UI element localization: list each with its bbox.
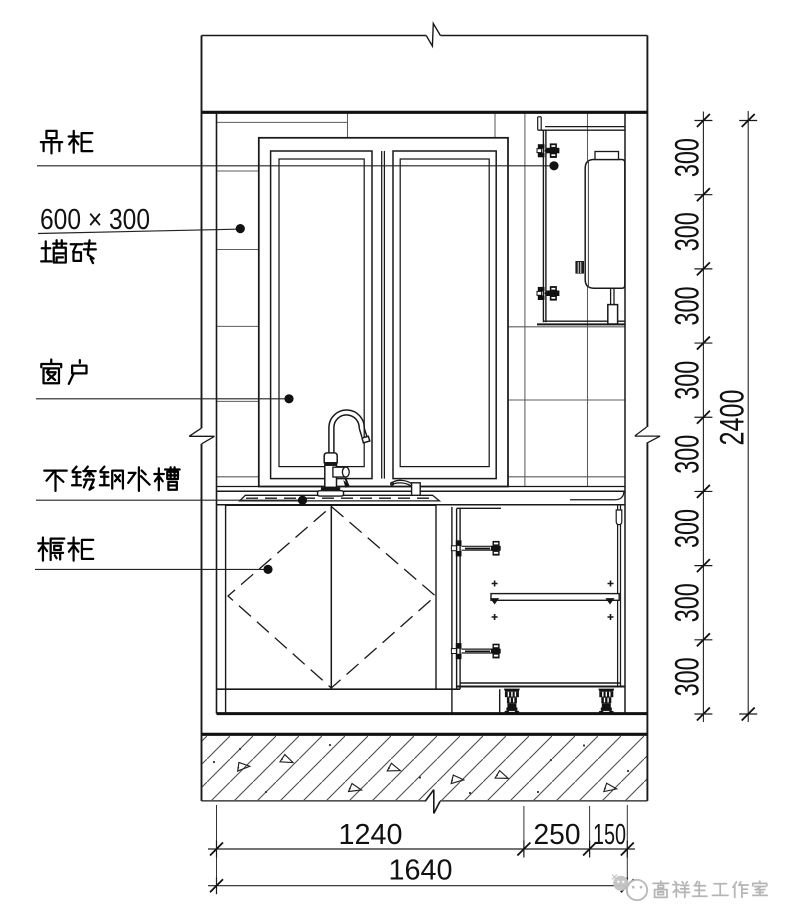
svg-text:300: 300	[669, 657, 707, 696]
svg-text:300: 300	[669, 361, 707, 400]
svg-text:300: 300	[669, 509, 707, 548]
svg-text:300: 300	[669, 435, 707, 474]
svg-text:300: 300	[669, 287, 707, 326]
svg-text:600 × 300: 600 × 300	[40, 204, 150, 236]
svg-text:1640: 1640	[389, 855, 453, 887]
svg-text:300: 300	[669, 583, 707, 622]
svg-text:300: 300	[669, 138, 707, 177]
svg-text:2400: 2400	[714, 390, 752, 446]
svg-text:250: 250	[534, 819, 581, 851]
svg-text:1240: 1240	[339, 819, 403, 851]
svg-text:300: 300	[669, 212, 707, 251]
svg-text:150: 150	[593, 819, 626, 851]
